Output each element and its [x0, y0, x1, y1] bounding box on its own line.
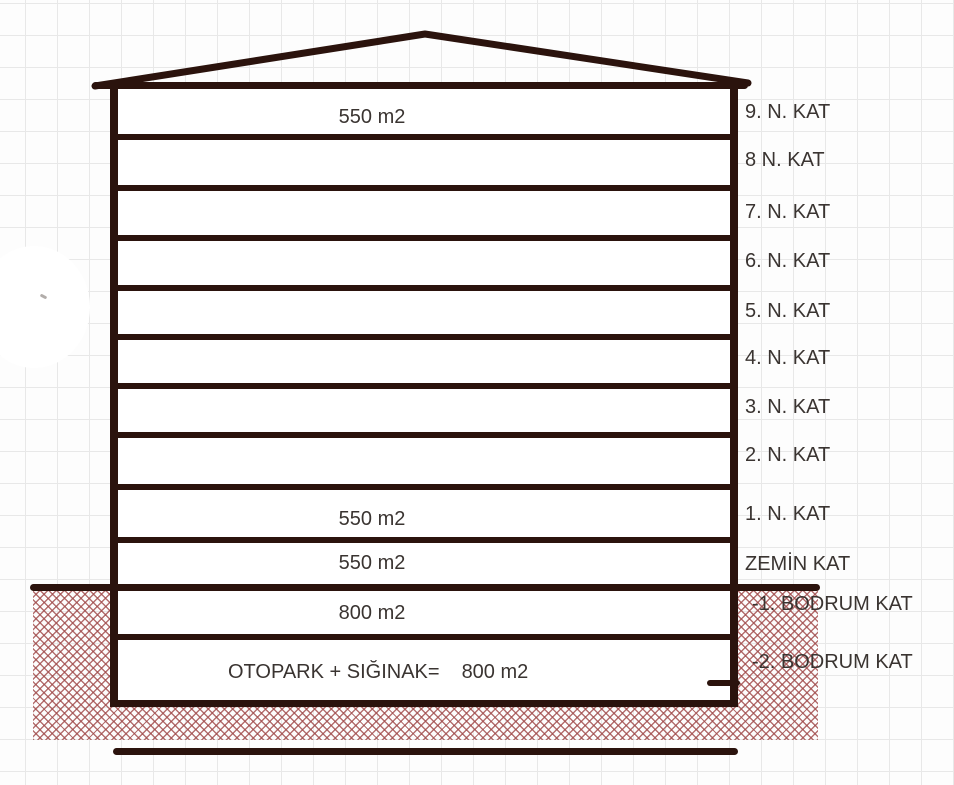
floor-label-minus1-bodrum: -1. BODRUM KAT [752, 590, 913, 618]
floor-label-6-n-kat: 6. N. KAT [745, 247, 830, 275]
eraser-smudge [0, 246, 90, 368]
floor-label-minus2-bodrum: -2. BODRUM KAT [752, 648, 913, 676]
otopark-siginak-area: 800 m2 [462, 658, 529, 686]
floor-line [110, 634, 738, 640]
area-label-1-n-kat: 550 m2 [339, 505, 406, 533]
eaves-line [92, 82, 748, 89]
basement-level-tick [707, 680, 740, 686]
floor-line [110, 537, 738, 543]
area-label-zemin-kat: 550 m2 [339, 549, 406, 577]
floor-label-9-n-kat: 9. N. KAT [745, 98, 830, 126]
floor-label-zemin-kat: ZEMİN KAT [745, 550, 850, 578]
floor-label-5-n-kat: 5. N. KAT [745, 297, 830, 325]
floor-line [110, 484, 738, 490]
ground-level-line [30, 584, 820, 591]
otopark-siginak-label: OTOPARK + SIĞINAK= [228, 658, 440, 686]
foundation-baseline [113, 748, 738, 755]
floor-line [110, 285, 738, 291]
roof-outline [0, 0, 954, 110]
floor-label-2-n-kat: 2. N. KAT [745, 441, 830, 469]
floor-label-8-n-kat: 8 N. KAT [745, 146, 825, 174]
building-outline [110, 85, 738, 707]
floor-label-3-n-kat: 3. N. KAT [745, 393, 830, 421]
floor-line [110, 432, 738, 438]
drawing-canvas: 9. N. KAT 8 N. KAT 7. N. KAT 6. N. KAT 5… [0, 0, 954, 785]
floor-label-4-n-kat: 4. N. KAT [745, 344, 830, 372]
area-label-minus1-bodrum: 800 m2 [339, 599, 406, 627]
floor-line [110, 134, 738, 140]
floor-label-1-n-kat: 1. N. KAT [745, 500, 830, 528]
area-label-9-n-kat: 550 m2 [339, 103, 406, 131]
floor-label-7-n-kat: 7. N. KAT [745, 198, 830, 226]
floor-line [110, 334, 738, 340]
floor-line [110, 185, 738, 191]
area-label-minus2-bodrum: OTOPARK + SIĞINAK= 800 m2 [228, 658, 528, 686]
floor-line [110, 383, 738, 389]
floor-line [110, 235, 738, 241]
